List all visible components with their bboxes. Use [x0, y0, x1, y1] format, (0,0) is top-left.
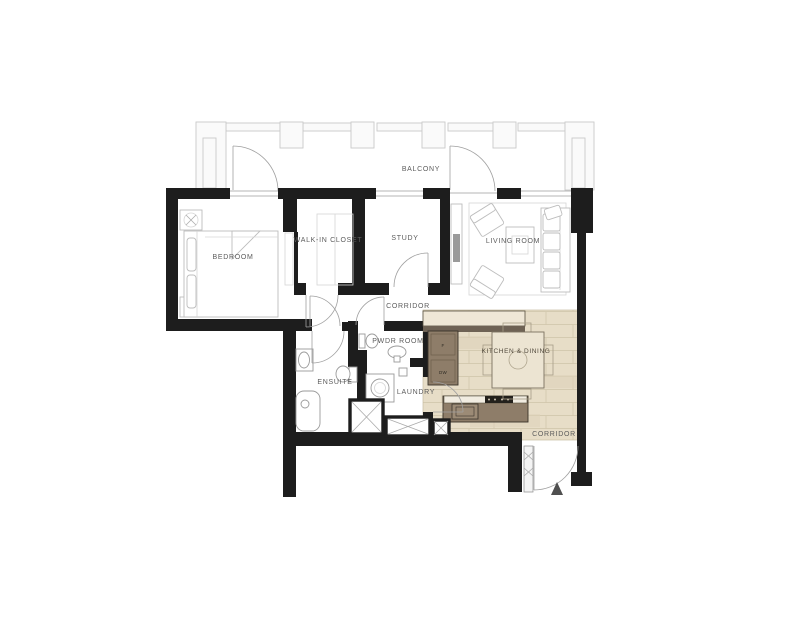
study: STUDY	[391, 235, 418, 242]
balcony: BALCONY	[196, 122, 594, 191]
study-door	[394, 253, 428, 287]
corridor-label: CORRIDOR	[386, 303, 430, 310]
armchair	[470, 203, 505, 237]
pillow	[187, 238, 196, 271]
living-room-label: LIVING ROOM	[486, 238, 540, 245]
bedroom-door	[310, 296, 340, 326]
balcony-railing	[226, 123, 280, 131]
ensuite-door	[312, 331, 344, 363]
entry: CORRIDOR	[524, 431, 578, 495]
window-study	[376, 191, 423, 196]
balcony-label: BALCONY	[402, 166, 440, 173]
corridor-main: CORRIDOR	[386, 303, 430, 310]
living-room: LIVING ROOM	[451, 203, 570, 299]
bedroom: BEDROOM	[180, 210, 278, 317]
kitchen-island	[423, 311, 525, 326]
balcony-door-living	[450, 146, 495, 191]
bed	[184, 231, 278, 317]
balcony-door-bedroom	[233, 146, 278, 191]
pwdr-door	[356, 297, 384, 325]
laundry-label: LAUNDRY	[397, 389, 435, 396]
ensuite: ENSUITE	[296, 349, 357, 431]
bedroom-label: BEDROOM	[212, 254, 253, 261]
fridge-label: F	[442, 343, 445, 348]
pillow	[187, 275, 196, 308]
bathtub	[296, 391, 320, 431]
kitchen-tall-counter: F DW	[428, 331, 458, 385]
toilet-tank	[359, 334, 365, 348]
ensuite-label: ENSUITE	[317, 379, 352, 386]
wardrobe	[285, 233, 293, 285]
closet-label: WALK-IN CLOSET	[294, 237, 363, 244]
kitchen-bottom-counter	[443, 396, 528, 422]
entry-arrow-icon	[551, 482, 563, 495]
dishwasher-label: DW	[439, 370, 447, 375]
pwdr-room: PWDR ROOM	[359, 334, 424, 362]
coffee-table	[506, 227, 534, 263]
corner-column	[571, 188, 593, 233]
pwdr-room-label: PWDR ROOM	[372, 338, 423, 345]
window-living	[521, 191, 571, 196]
outlet	[399, 368, 407, 376]
tv	[453, 234, 460, 262]
floorplan-svg: BALCONY	[0, 0, 799, 626]
sofa	[541, 205, 570, 292]
floorplan-canvas: BALCONY	[0, 0, 799, 626]
study-label: STUDY	[391, 235, 418, 242]
armchair	[470, 265, 505, 299]
drain	[301, 400, 309, 408]
window-bedroom	[230, 191, 278, 196]
kitchen-dining-label: KITCHEN & DINING	[482, 348, 551, 355]
dining-table	[483, 323, 553, 399]
entry-corridor-label: CORRIDOR	[532, 431, 576, 438]
